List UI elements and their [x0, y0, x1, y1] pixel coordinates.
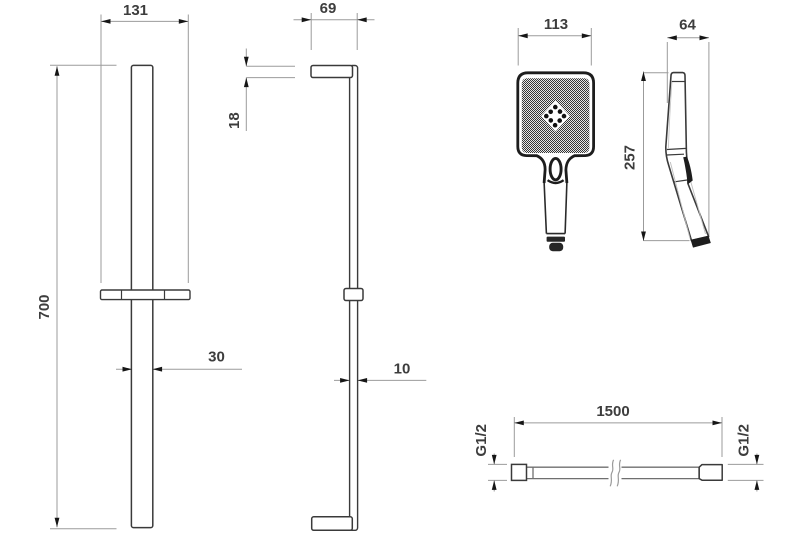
svg-text:131: 131: [123, 2, 148, 19]
svg-text:18: 18: [226, 112, 243, 129]
svg-text:69: 69: [320, 0, 337, 17]
svg-text:64: 64: [679, 17, 696, 34]
svg-text:30: 30: [208, 349, 225, 366]
svg-text:113: 113: [544, 16, 568, 33]
svg-text:1500: 1500: [596, 403, 629, 420]
svg-text:G1/2: G1/2: [473, 424, 490, 457]
svg-text:10: 10: [394, 361, 411, 378]
svg-text:G1/2: G1/2: [736, 424, 753, 457]
svg-text:700: 700: [36, 294, 53, 319]
svg-text:257: 257: [622, 145, 639, 170]
